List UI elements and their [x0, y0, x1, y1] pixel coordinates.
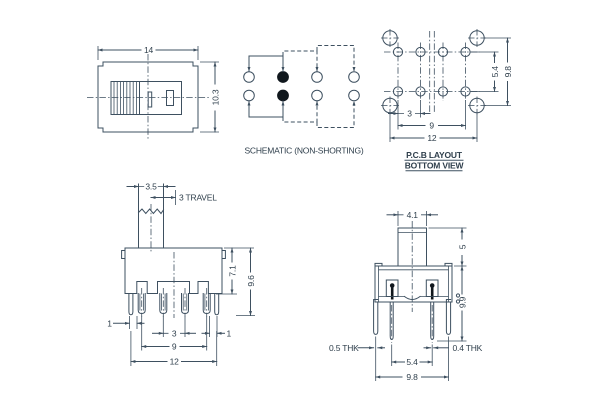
pcb-layout-subtitle: BOTTOM VIEW — [405, 161, 465, 171]
dim-text: 3 TRAVEL — [179, 193, 217, 203]
terminal-circle — [349, 72, 360, 83]
dim-text: 1 — [107, 318, 112, 328]
terminal-circle — [244, 90, 255, 101]
dim-text: 0.5 THK — [329, 343, 359, 353]
dim-text: 5.4 — [490, 66, 500, 78]
dim-text: 9.9 — [457, 296, 467, 308]
dashed-position-link — [283, 51, 317, 72]
engineering-drawing-slide-switch: 14 10.3 SCHEMATIC (NON-SHORTING) — [0, 0, 600, 400]
dashed-position-link — [317, 101, 354, 128]
dim-text: 3 — [172, 328, 177, 338]
package-centerlines — [430, 31, 435, 112]
top-lip-left — [375, 263, 382, 266]
terminal-circle — [312, 72, 323, 83]
dim-text: 5.4 — [406, 357, 418, 367]
dim-text: 12 — [427, 133, 437, 143]
dim-height-10.3: 10.3 — [200, 62, 221, 132]
dim-text: 3.5 — [145, 182, 157, 192]
dim-actuator-width-3.5: 3.5 — [127, 182, 175, 192]
dim-text: 4.1 — [407, 210, 419, 220]
schematic-view: SCHEMATIC (NON-SHORTING) — [244, 46, 364, 156]
dim-text: 14 — [144, 45, 154, 55]
dim-overall-height-9.6: 9.6 — [236, 248, 256, 316]
dim-text: 9.6 — [246, 275, 256, 287]
dim-actuator-height-5: 5 — [429, 228, 468, 266]
dim-text: 12 — [170, 357, 180, 367]
side-detail-hole — [456, 294, 459, 297]
dashed-position-link — [317, 46, 354, 72]
mount-hole-centerlines — [381, 29, 486, 115]
solid-contact-link-top — [249, 56, 283, 72]
dim-pin-span-9: 9 — [142, 342, 207, 352]
dim-text: 9.8 — [406, 372, 418, 382]
dim-travel-3: 3 TRAVEL — [151, 190, 217, 205]
dim-text: 1 — [227, 328, 232, 338]
drawing-canvas: 14 10.3 SCHEMATIC (NON-SHORTING) — [0, 0, 600, 400]
top-lip-right — [445, 263, 452, 266]
dim-text: 9 — [172, 342, 177, 352]
dim-pin-pitch-3: 3 — [153, 328, 196, 338]
mounting-ears — [122, 251, 226, 259]
terminal-circle — [244, 72, 255, 83]
dim-mount-span-12: 12 — [131, 357, 217, 367]
knurled-slider — [111, 82, 140, 115]
dim-left-thickness: 0.5 THK — [329, 343, 385, 353]
solid-contact-link-bottom — [249, 101, 283, 117]
knurl-lines — [114, 82, 136, 114]
side-view: 4.1 5 — [329, 210, 483, 382]
dim-text: 9.8 — [503, 66, 513, 78]
dim-left-offset-1: 1 — [107, 318, 144, 328]
common-terminal-filled — [277, 71, 289, 83]
pcb-layout-view: 3 9 12 5.4 9.8 P.C.B LAYOUT BOTTOM — [381, 29, 513, 171]
slider-nib — [148, 92, 152, 107]
dim-text: 3 — [407, 109, 412, 119]
common-terminal-filled — [277, 90, 289, 102]
dim-text: 5 — [457, 244, 467, 249]
dim-text: 9 — [429, 121, 434, 131]
dim-row-gap-5.4: 5.4 — [470, 52, 500, 92]
dim-right-thickness: 0.4 THK — [424, 343, 483, 353]
front-view: 3.5 3 TRAVEL 7.1 — [107, 182, 256, 367]
dashed-position-link — [283, 101, 317, 122]
slider-recess — [111, 82, 182, 115]
terminal-circle — [349, 90, 360, 101]
actuator-hole — [167, 91, 174, 106]
pad-centerlines-vertical — [398, 43, 466, 102]
switch-body-outline — [125, 248, 222, 294]
dim-text: 10.3 — [211, 89, 221, 105]
dim-text: 0.4 THK — [453, 343, 483, 353]
dim-text: 7.1 — [227, 265, 237, 277]
terminal-circle — [312, 90, 323, 101]
top-view: 14 10.3 — [87, 45, 221, 140]
schematic-caption: SCHEMATIC (NON-SHORTING) — [244, 146, 363, 156]
pcb-layout-title: P.C.B LAYOUT — [406, 150, 463, 160]
terminal-pads — [393, 47, 470, 96]
